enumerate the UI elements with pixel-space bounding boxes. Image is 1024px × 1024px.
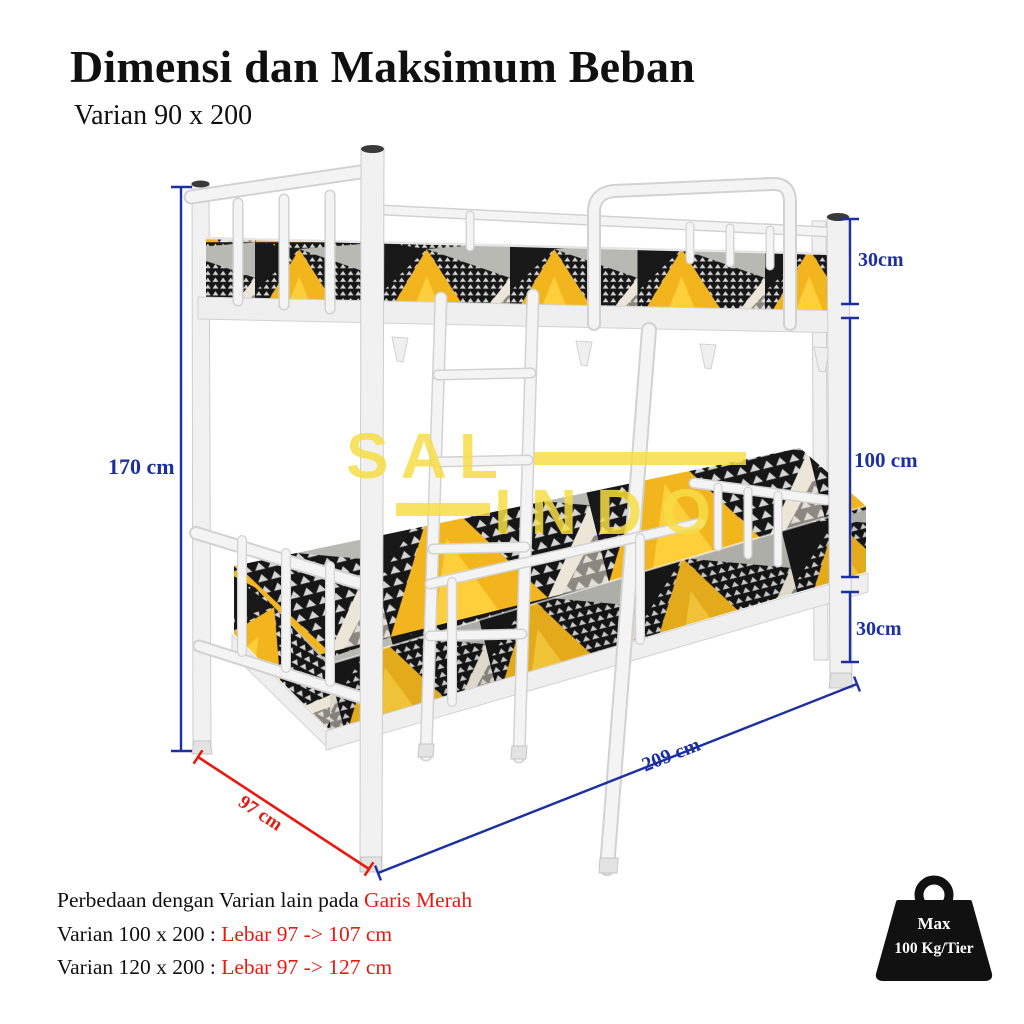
page-title: Dimensi dan Maksimum Beban bbox=[70, 40, 695, 93]
note-line-1: Perbedaan dengan Varian lain pada Garis … bbox=[57, 884, 472, 918]
watermark-bar-top bbox=[534, 452, 746, 465]
note-2-red: Lebar 97 -> 107 cm bbox=[221, 922, 392, 946]
watermark-text-indo: INDO bbox=[494, 480, 730, 544]
note-1-red: Garis Merah bbox=[364, 888, 472, 912]
note-1-black: Perbedaan dengan Varian lain pada bbox=[57, 888, 364, 912]
note-line-3: Varian 120 x 200 : Lebar 97 -> 127 cm bbox=[57, 951, 472, 985]
note-3-red: Lebar 97 -> 127 cm bbox=[221, 955, 392, 979]
dimension-label-total-height: 170 cm bbox=[108, 454, 175, 480]
dimension-label-middle-clearance: 100 cm bbox=[854, 448, 918, 473]
max-load-value: 100 Kg/Tier bbox=[866, 940, 1002, 958]
variant-notes: Perbedaan dengan Varian lain pada Garis … bbox=[57, 884, 472, 985]
watermark-text-sal: SAL bbox=[346, 424, 510, 488]
dimension-line-width bbox=[194, 750, 374, 875]
dimension-label-top-tier: 30cm bbox=[858, 249, 904, 272]
max-load-badge: Max 100 Kg/Tier bbox=[866, 868, 1002, 986]
note-line-2: Varian 100 x 200 : Lebar 97 -> 107 cm bbox=[57, 918, 472, 952]
variant-subtitle: Varian 90 x 200 bbox=[74, 100, 252, 132]
dimension-label-bottom-tier: 30cm bbox=[856, 618, 902, 641]
watermark-bar-bottom bbox=[396, 503, 490, 516]
front-left-post bbox=[360, 145, 384, 872]
note-3-black: Varian 120 x 200 : bbox=[57, 955, 221, 979]
max-load-label: Max bbox=[866, 914, 1002, 934]
note-2-black: Varian 100 x 200 : bbox=[57, 922, 221, 946]
